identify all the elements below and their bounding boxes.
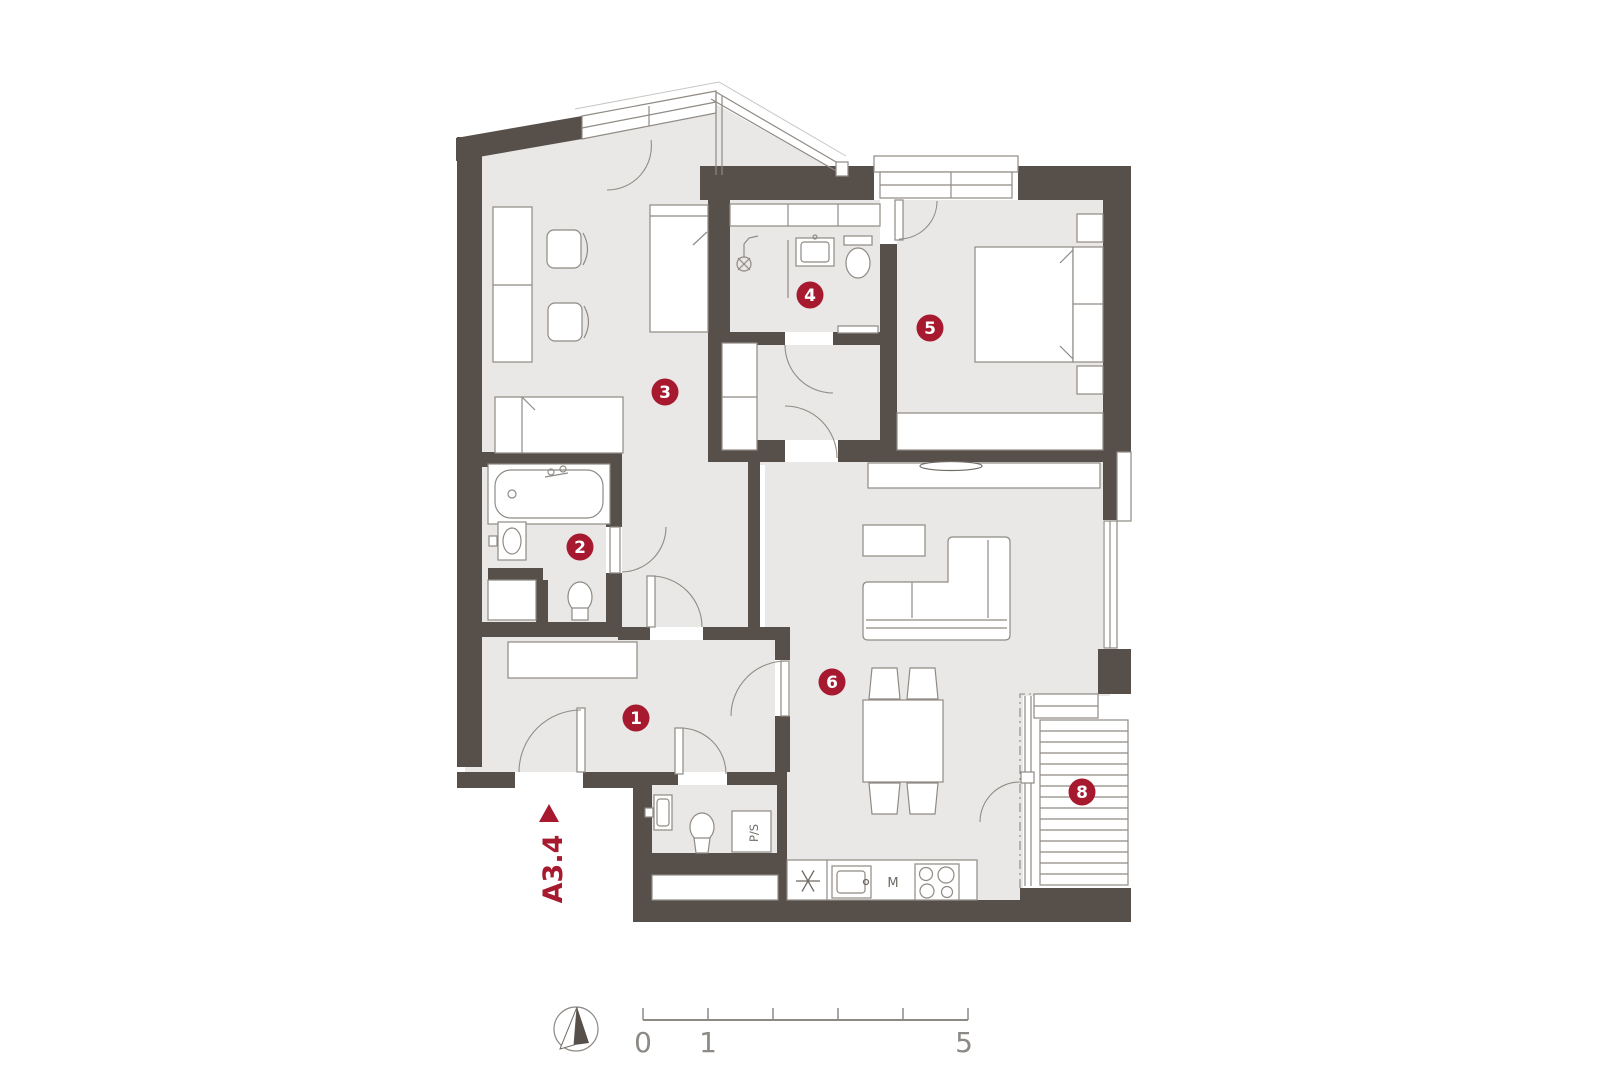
scale-bar: 0 1 5 <box>634 1008 973 1059</box>
coffee-table <box>863 525 925 556</box>
desk-chair-icon <box>548 303 589 341</box>
chair-icon <box>907 668 938 699</box>
scale-label-1: 1 <box>699 1026 717 1059</box>
wall-wc-top-a <box>640 772 678 785</box>
floor-plan-drawing: P/S M 1 2 3 <box>0 0 1613 1080</box>
room-badge-8: 8 <box>1069 779 1096 806</box>
bathtub-icon <box>488 464 610 524</box>
room-badge-1-number: 1 <box>630 709 642 729</box>
chair-icon <box>869 783 900 814</box>
washer-dryer: P/S <box>732 811 771 852</box>
room-badge-2-number: 2 <box>574 538 586 558</box>
wall-balcony-bottom <box>1020 888 1131 922</box>
glazing-corner-post <box>836 162 848 176</box>
wall-bath4-bottom-b <box>833 332 880 345</box>
tv-icon <box>920 462 982 471</box>
wall-bath2-bottom <box>457 622 622 637</box>
bath4-niche <box>730 204 880 226</box>
scale-label-5: 5 <box>955 1026 973 1059</box>
nightstand <box>1077 366 1103 394</box>
room-badge-5: 5 <box>917 315 944 342</box>
sideboard <box>868 463 1100 488</box>
sliding-door-handle <box>1021 772 1034 783</box>
dining-table <box>863 700 943 782</box>
room-badge-2: 2 <box>567 534 594 561</box>
room-badge-4: 4 <box>797 282 824 309</box>
wall-entrance-a <box>457 772 515 788</box>
washer-dryer-label: P/S <box>747 824 761 842</box>
room-badge-4-number: 4 <box>804 286 816 306</box>
wall-entrance-b <box>583 772 640 788</box>
unit-label-group: A3.4 <box>538 804 569 903</box>
wall-wc-bottom <box>652 853 787 875</box>
room5-window <box>874 156 1018 200</box>
exterior-wall-right-mid <box>1098 649 1131 694</box>
cooktop-icon <box>915 864 959 900</box>
room-badge-5-number: 5 <box>924 319 936 339</box>
exterior-niche <box>652 875 778 900</box>
room-badge-6: 6 <box>819 669 846 696</box>
wardrobe <box>897 413 1103 450</box>
north-arrow-icon <box>554 1007 598 1051</box>
toilet-icon <box>568 582 592 620</box>
room-badge-3-number: 3 <box>659 383 671 403</box>
wall-bath2-shaft-b <box>536 580 548 622</box>
exterior-wall-bottom <box>633 900 1023 922</box>
wall-hall-top-a <box>618 627 650 640</box>
room-badge-3: 3 <box>652 379 679 406</box>
wall-wc-left <box>633 772 652 920</box>
single-bed-horizontal <box>495 397 623 453</box>
towel-rail <box>838 326 878 333</box>
double-bed <box>975 247 1103 362</box>
wall-bath2-shaft-a <box>488 568 543 580</box>
kitchen-sink-icon <box>832 866 871 898</box>
toilet-icon <box>844 236 872 278</box>
dishwasher-label: M <box>887 876 898 891</box>
room-badge-1: 1 <box>623 705 650 732</box>
chair-icon <box>869 668 900 699</box>
window-recess <box>1117 452 1131 521</box>
entrance-arrow-icon <box>539 804 559 822</box>
wall-hall-living-b <box>775 716 790 772</box>
unit-label: A3.4 <box>538 835 569 904</box>
room-badge-8-number: 8 <box>1076 783 1088 803</box>
wall-bath4-right <box>880 244 897 452</box>
room-badge-6-number: 6 <box>826 673 838 693</box>
wall-hall-living-a <box>775 627 790 660</box>
single-bed-vertical <box>650 205 708 332</box>
scale-label-0: 0 <box>634 1026 652 1059</box>
wall-nook-east <box>748 462 760 633</box>
nightstand <box>1077 214 1103 242</box>
shaft <box>488 580 536 620</box>
desk-chair-icon <box>547 230 588 268</box>
floor-plan-page: P/S M 1 2 3 <box>0 0 1613 1080</box>
sink-icon <box>796 235 834 266</box>
kitchen-counter: M <box>787 860 977 900</box>
hall-wardrobe <box>508 642 637 678</box>
chair-icon <box>907 783 938 814</box>
